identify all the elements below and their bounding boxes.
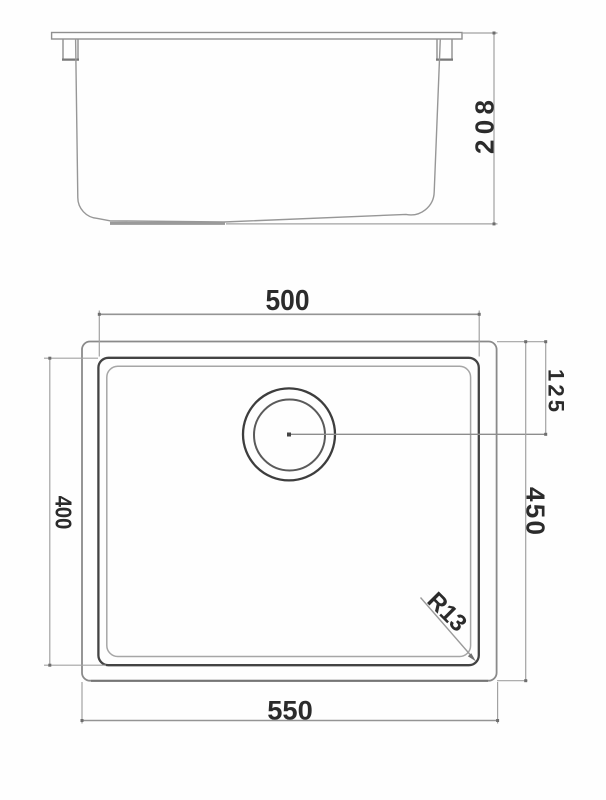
svg-text:450: 450 bbox=[521, 487, 551, 535]
svg-text:500: 500 bbox=[266, 285, 310, 317]
svg-text:125: 125 bbox=[544, 369, 569, 412]
svg-text:400: 400 bbox=[51, 496, 77, 530]
svg-text:208: 208 bbox=[470, 100, 500, 154]
svg-text:550: 550 bbox=[267, 696, 313, 726]
svg-text:R13: R13 bbox=[422, 587, 472, 637]
